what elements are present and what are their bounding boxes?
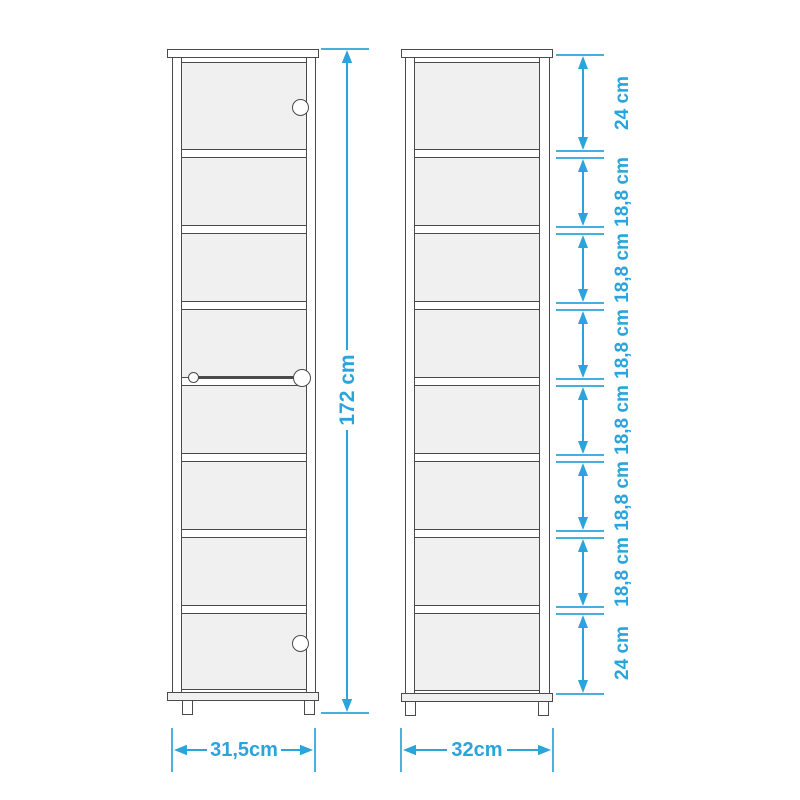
shelf-height-label: 18,8 cm [611,304,633,384]
arrow-right-icon [538,745,551,755]
cabinet-leg [538,701,549,716]
door-knob [293,369,311,387]
door-section [181,537,307,606]
shelf-height-label: 18,8 cm [611,228,633,308]
shelf-compartment [414,385,540,454]
shelf-compartment [414,233,540,302]
shelf-dimension-chain [556,55,604,694]
shelf-height-label: 24 cm [611,63,633,143]
shelf-compartment [414,62,540,150]
shelf-height-label: 18,8 cm [611,380,633,460]
shelf-compartment [414,461,540,530]
height-dimension-label: 172 cm [335,345,359,435]
dimension-drawing: 172 cm 31,5cm 32cm 24 cm 18,8 cm 18,8 cm… [0,0,800,800]
front-width-label: 31,5cm [194,739,294,761]
shelf-height-label: 24 cm [611,613,633,693]
arrow-up-icon [342,50,352,63]
shelf-compartment [414,537,540,606]
cabinet-base-rail [401,693,553,702]
arrow-right-icon [300,745,313,755]
door-section [181,233,307,302]
dimension-lines [0,0,800,800]
door-knob [292,99,309,116]
arrow-left-icon [403,745,416,755]
arrow-down-icon [342,699,352,712]
shelf-height-label: 18,8 cm [611,456,633,536]
handle-small-knob [188,372,199,383]
shelf-height-label: 18,8 cm [611,532,633,612]
door-section [181,613,307,690]
arrow-left-icon [174,745,187,755]
cabinet-leg [405,701,416,716]
shelf-compartment [414,309,540,378]
cabinet-top-panel [167,49,319,58]
door-knob [292,635,309,652]
shelf-height-label: 18,8 cm [611,152,633,232]
cabinet-leg [182,700,193,715]
door-section [181,461,307,530]
cabinet-top-panel [401,49,553,58]
cabinet-right-side [539,57,550,694]
door-section [181,385,307,454]
door-section [181,157,307,226]
shelf-compartment [414,157,540,226]
handle-rail [193,376,303,379]
door-section [181,309,307,378]
shelf-compartment [414,613,540,691]
door-section [181,62,307,150]
cabinet-leg [304,700,315,715]
side-width-label: 32cm [427,739,527,761]
